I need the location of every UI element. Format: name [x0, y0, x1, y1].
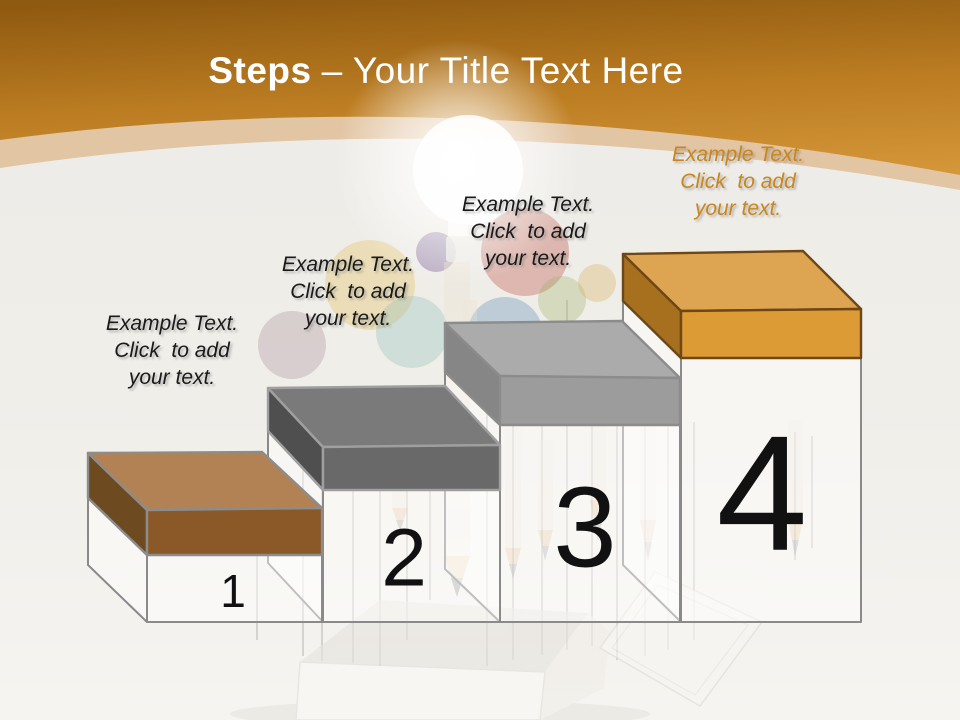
slide-canvas: Steps– Your Title Text Here: [0, 0, 960, 720]
step-4-slab-front: [681, 309, 861, 358]
step-3-number[interactable]: 3: [553, 472, 616, 586]
step-4-label[interactable]: Example Text. Click to add your text.: [628, 141, 848, 222]
step-2-label-line: Click to add: [238, 278, 458, 305]
step-1-shape[interactable]: [88, 452, 322, 622]
step-3-label-line: Click to add: [418, 218, 638, 245]
step-4-label-line: Example Text.: [628, 141, 848, 168]
step-1-label-line: Click to add: [62, 337, 282, 364]
step-3-slab-front: [500, 376, 680, 425]
step-4-label-line: Click to add: [628, 168, 848, 195]
step-1-number[interactable]: 1: [220, 568, 246, 614]
step-2-label-line: your text.: [238, 305, 458, 332]
step-1-slab-front: [147, 508, 322, 555]
step-2-slab-front: [323, 445, 500, 490]
step-1-label-line: your text.: [62, 364, 282, 391]
step-2-number[interactable]: 2: [381, 517, 427, 599]
step-3-label-line: your text.: [418, 245, 638, 272]
step-4-label-line: your text.: [628, 195, 848, 222]
step-3-label[interactable]: Example Text. Click to add your text.: [418, 191, 638, 272]
step-3-label-line: Example Text.: [418, 191, 638, 218]
step-4-number[interactable]: 4: [716, 412, 807, 576]
